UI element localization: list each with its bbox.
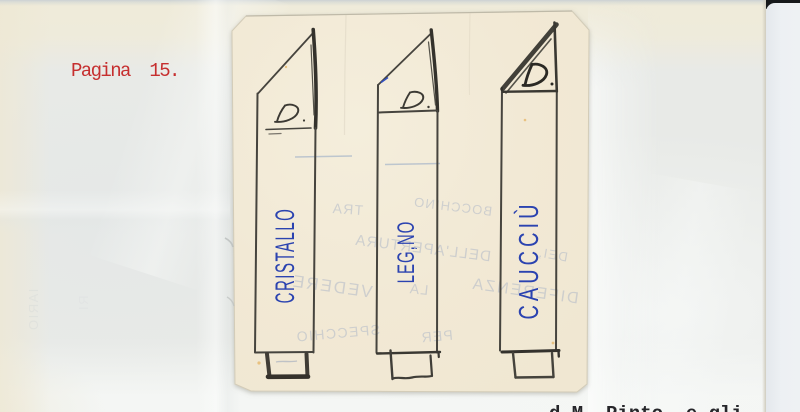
svg-text:TRA: TRA: [331, 200, 364, 218]
svg-text:LEG,NO: LEG,NO: [394, 221, 420, 284]
svg-text:CRISTALLO: CRISTALLO: [269, 208, 300, 304]
svg-text:CAUCCIÙ: CAUCCIÙ: [514, 200, 545, 319]
svg-text:ІЯ: ІЯ: [76, 294, 91, 310]
svg-text:ОІЯАІ: ОІЯАІ: [26, 287, 41, 330]
